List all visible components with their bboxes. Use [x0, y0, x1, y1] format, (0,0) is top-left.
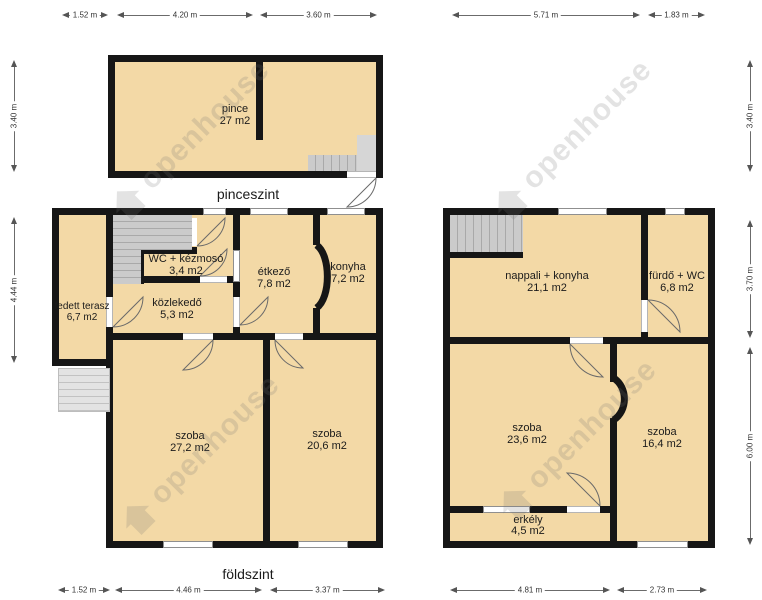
dim-label: 1.52 m	[69, 586, 99, 595]
dim-bottom-1: 1.52 m	[58, 585, 110, 595]
upperfloor-stairs	[450, 215, 523, 252]
door-wc	[200, 276, 227, 283]
door-room1	[183, 333, 213, 340]
room-name: nappali + konyha	[487, 270, 607, 282]
basement-stairs	[308, 155, 360, 171]
room-label-wc: WC + kézmosó 3,4 m2	[136, 253, 236, 277]
room-label-nappali: nappali + konyha 21,1 m2	[487, 270, 607, 294]
arrow-down-icon	[747, 538, 753, 545]
window-room1	[163, 541, 213, 548]
groundfloor-stairs-upper	[113, 215, 192, 250]
room-name: pince	[200, 103, 270, 115]
room-area: 4,5 m2	[488, 526, 568, 537]
groundfloor-room-divider-wall	[263, 333, 270, 548]
dim-top-3: 3.60 m	[260, 10, 377, 20]
room-label-konyha: konyha 7,2 m2	[313, 261, 383, 285]
window-balcony	[483, 506, 530, 513]
room-label-upper-szoba2: szoba 16,4 m2	[622, 426, 702, 450]
arrow-up-icon	[11, 217, 17, 224]
arrow-right-icon	[378, 587, 385, 593]
dim-label: 3.70 m	[746, 264, 755, 294]
arrow-up-icon	[747, 60, 753, 67]
door-hall-dining	[233, 297, 240, 327]
dining-wall-top	[233, 215, 240, 250]
kitchen-wall-top	[313, 215, 320, 245]
room-area: 20,6 m2	[287, 440, 367, 452]
dim-label: 4.44 m	[10, 275, 19, 305]
basement-exterior-door	[347, 171, 376, 178]
arrow-left-icon	[452, 12, 459, 18]
arrow-left-icon	[450, 587, 457, 593]
room-name: szoba	[287, 428, 367, 440]
room-name: közlekedő	[127, 297, 227, 309]
arrow-right-icon	[255, 587, 262, 593]
arrow-right-icon	[370, 12, 377, 18]
arrow-down-icon	[11, 165, 17, 172]
arrow-left-icon	[62, 12, 69, 18]
door-balcony	[567, 506, 600, 513]
room-label-szoba1: szoba 27,2 m2	[150, 430, 230, 454]
basement-stairs-landing	[357, 135, 376, 171]
dim-right-2: 3.70 m	[745, 220, 755, 338]
arrow-up-icon	[747, 220, 753, 227]
arrow-left-icon	[648, 12, 655, 18]
dim-label: 4.46 m	[173, 586, 203, 595]
upper-room-divider-bottom	[610, 418, 617, 548]
groundfloor-title: földszint	[178, 566, 318, 582]
room-area: 23,6 m2	[487, 434, 567, 446]
arrow-right-icon	[246, 12, 253, 18]
dim-bottom-4: 4.81 m	[450, 585, 610, 595]
dim-label: 6.00 m	[746, 431, 755, 461]
dim-top-5: 1.83 m	[648, 10, 705, 20]
window-upper-room2	[637, 541, 688, 548]
room-label-upper-szoba1: szoba 23,6 m2	[487, 422, 567, 446]
dim-top-2: 4.20 m	[117, 10, 253, 20]
upper-room-divider-top	[610, 337, 617, 382]
room-name: fedett terasz	[47, 301, 117, 312]
door-bathroom	[641, 300, 648, 332]
door-arc-basement	[347, 178, 376, 207]
upperfloor-outline	[443, 208, 715, 548]
arrow-up-icon	[11, 60, 17, 67]
dim-label: 4.20 m	[170, 11, 200, 20]
arrow-down-icon	[747, 331, 753, 338]
arrow-right-icon	[700, 587, 707, 593]
room-area: 7,8 m2	[234, 278, 314, 290]
room-area: 5,3 m2	[127, 309, 227, 321]
arrow-down-icon	[747, 165, 753, 172]
window-dining	[250, 208, 288, 215]
dim-left-2: 4.44 m	[9, 217, 19, 363]
room-name: szoba	[487, 422, 567, 434]
room-label-erkely: erkély 4,5 m2	[488, 515, 568, 537]
room-area: 27,2 m2	[150, 442, 230, 454]
dim-left-1: 3.40 m	[9, 60, 19, 172]
watermark-text: openhouse	[515, 53, 659, 197]
room-label-etkezo: étkező 7,8 m2	[234, 266, 314, 290]
arrow-left-icon	[115, 587, 122, 593]
dim-label: 5.71 m	[531, 11, 561, 20]
dim-top-1: 1.52 m	[62, 10, 108, 20]
terrace-exterior-steps	[58, 368, 110, 412]
room-name: WC + kézmosó	[136, 253, 236, 265]
window-wc	[203, 208, 226, 215]
dim-label: 3.40 m	[746, 101, 755, 131]
door-room2	[275, 333, 303, 340]
room-name: konyha	[313, 261, 383, 273]
window-kitchen	[327, 208, 365, 215]
terrace-outline	[52, 208, 113, 366]
arrow-left-icon	[617, 587, 624, 593]
window-living	[558, 208, 607, 215]
room-area: 7,2 m2	[313, 273, 383, 285]
room-label-szoba2: szoba 20,6 m2	[287, 428, 367, 452]
arrow-right-icon	[603, 587, 610, 593]
groundfloor-middle-wall	[106, 333, 383, 340]
arrow-up-icon	[747, 347, 753, 354]
room-name: szoba	[150, 430, 230, 442]
room-area: 21,1 m2	[487, 282, 607, 294]
door-stairs-nook	[192, 218, 197, 246]
dim-right-1: 3.40 m	[745, 60, 755, 172]
door-upper-room1	[570, 337, 603, 344]
room-area: 6,8 m2	[637, 282, 717, 294]
room-label-kozlekedo: közlekedő 5,3 m2	[127, 297, 227, 321]
dim-label: 3.37 m	[312, 586, 342, 595]
room-area: 3,4 m2	[136, 265, 236, 277]
room-label-furdo: fürdő + WC 6,8 m2	[637, 270, 717, 294]
floorplan-canvas: pince 27 m2 fedett terasz 6,7 m2 WC + ké…	[0, 0, 762, 600]
window-room2	[298, 541, 348, 548]
dining-wall-bottom	[233, 327, 240, 340]
dim-label: 3.40 m	[10, 101, 19, 131]
arrow-right-icon	[633, 12, 640, 18]
kitchen-wall-bottom	[313, 308, 320, 340]
room-area: 16,4 m2	[622, 438, 702, 450]
basement-title: pinceszint	[178, 186, 318, 202]
dim-bottom-3: 3.37 m	[270, 585, 385, 595]
dim-label: 2.73 m	[647, 586, 677, 595]
dim-label: 1.83 m	[661, 11, 691, 20]
dim-label: 3.60 m	[303, 11, 333, 20]
room-label-pince: pince 27 m2	[200, 103, 270, 127]
arrow-right-icon	[103, 587, 110, 593]
dim-bottom-5: 2.73 m	[617, 585, 707, 595]
basement-partition-wall	[256, 55, 263, 140]
room-name: fürdő + WC	[637, 270, 717, 282]
dim-bottom-2: 4.46 m	[115, 585, 262, 595]
arrow-left-icon	[260, 12, 267, 18]
room-area: 6,7 m2	[47, 312, 117, 323]
arrow-right-icon	[101, 12, 108, 18]
room-name: étkező	[234, 266, 314, 278]
watermark: openhouse	[484, 52, 659, 227]
dim-label: 4.81 m	[515, 586, 545, 595]
arrow-down-icon	[11, 356, 17, 363]
dim-label: 1.52 m	[70, 11, 100, 20]
room-name: szoba	[622, 426, 702, 438]
room-area: 27 m2	[200, 115, 270, 127]
arrow-left-icon	[58, 587, 65, 593]
dim-top-4: 5.71 m	[452, 10, 640, 20]
room-label-terasz: fedett terasz 6,7 m2	[47, 301, 117, 323]
arrow-left-icon	[117, 12, 124, 18]
arrow-left-icon	[270, 587, 277, 593]
window-bathroom	[665, 208, 685, 215]
dim-right-3: 6.00 m	[745, 347, 755, 545]
upperfloor-stairs-wall	[443, 252, 523, 258]
arrow-right-icon	[698, 12, 705, 18]
